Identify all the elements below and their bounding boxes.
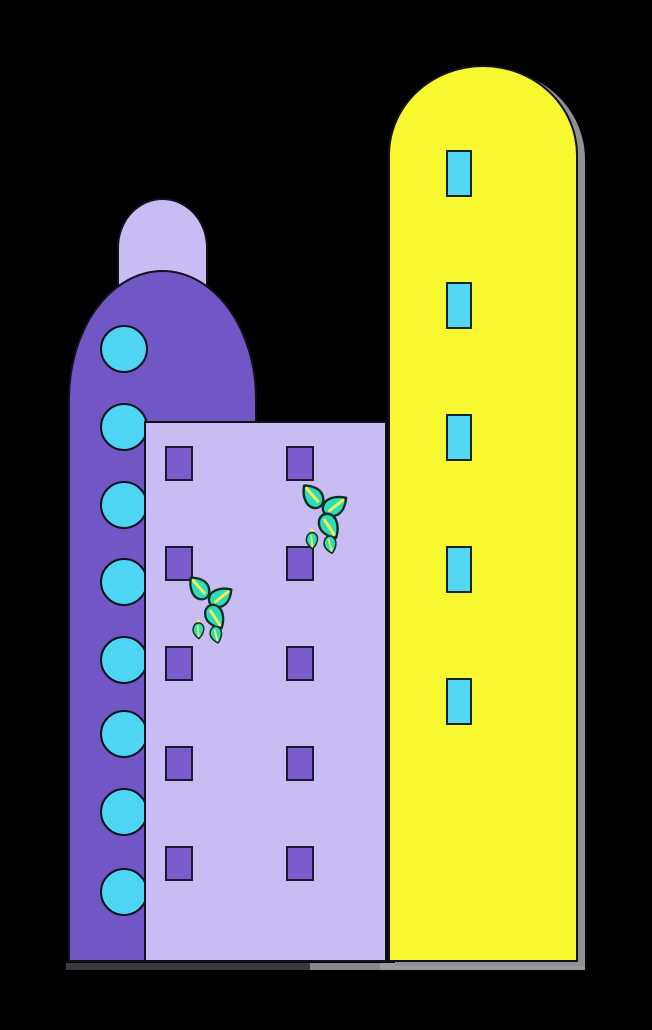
window-pane [165, 846, 193, 881]
plant-illustration [184, 569, 238, 645]
city-illustration [0, 0, 652, 1030]
yellow-building [388, 65, 578, 962]
plant-svg [184, 569, 238, 645]
porthole-window [100, 710, 148, 758]
porthole-window [100, 868, 148, 916]
plant-part [193, 623, 204, 639]
front-window-grid-left [165, 746, 255, 819]
porthole-window [100, 481, 148, 529]
plant-part [306, 532, 318, 549]
ground-shadow [310, 963, 380, 970]
porthole-window [100, 403, 148, 451]
yellow-window-grid [446, 546, 528, 642]
front-window-grid-right [286, 746, 376, 819]
ground-shadow [66, 963, 310, 970]
plant-illustration [297, 477, 353, 555]
porthole-window [100, 636, 148, 684]
front-window-grid-left [165, 646, 255, 719]
window-pane [286, 646, 314, 681]
front-window-grid-right [286, 846, 376, 919]
window-pane [446, 282, 472, 329]
porthole-window [100, 325, 148, 373]
porthole-window [100, 788, 148, 836]
front-window-grid-right [286, 646, 376, 719]
ground-shadow [380, 963, 585, 970]
window-pane [446, 414, 472, 461]
yellow-window-grid [446, 414, 528, 510]
window-pane [165, 446, 193, 481]
window-pane [286, 446, 314, 481]
window-pane [446, 678, 472, 725]
window-pane [165, 646, 193, 681]
yellow-window-grid [446, 150, 528, 246]
window-pane [286, 846, 314, 881]
yellow-window-grid [446, 678, 528, 774]
yellow-window-grid [446, 282, 528, 378]
front-window-grid-right [286, 546, 376, 619]
front-window-grid-left [165, 846, 255, 919]
plant-svg [297, 477, 353, 555]
window-pane [286, 746, 314, 781]
window-pane [446, 150, 472, 197]
window-pane [165, 746, 193, 781]
front-window-grid-left [165, 446, 255, 519]
porthole-window [100, 558, 148, 606]
window-pane [446, 546, 472, 593]
